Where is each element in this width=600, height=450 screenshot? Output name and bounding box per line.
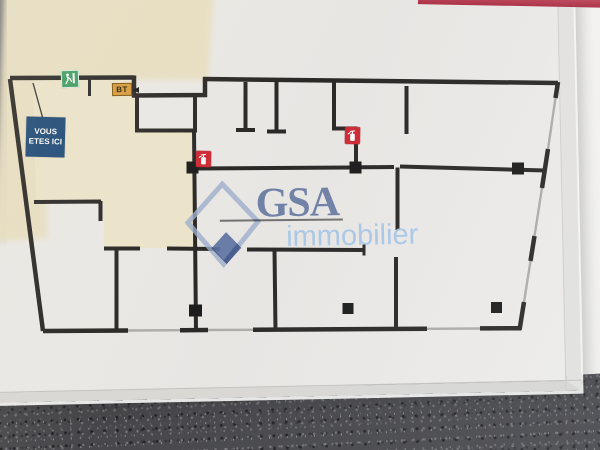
fire-extinguisher-icon (345, 127, 360, 144)
photo-of-evacuation-plan: GSA immobilier BT VOUS ETES ICI (0, 0, 600, 450)
gsa-logo-diamond-icon (183, 179, 263, 268)
you-are-here-line2: ETES ICI (26, 136, 65, 147)
you-are-here-marker: VOUS ETES ICI (25, 116, 65, 157)
bt-pointer-arrow-icon (133, 87, 139, 93)
fire-extinguisher-icon (196, 151, 211, 167)
emergency-exit-icon (61, 70, 80, 89)
you-are-here-room-fill (33, 79, 194, 248)
bt-panel-label: BT (112, 83, 132, 96)
gsa-logo-subtitle: immobilier (286, 219, 419, 254)
